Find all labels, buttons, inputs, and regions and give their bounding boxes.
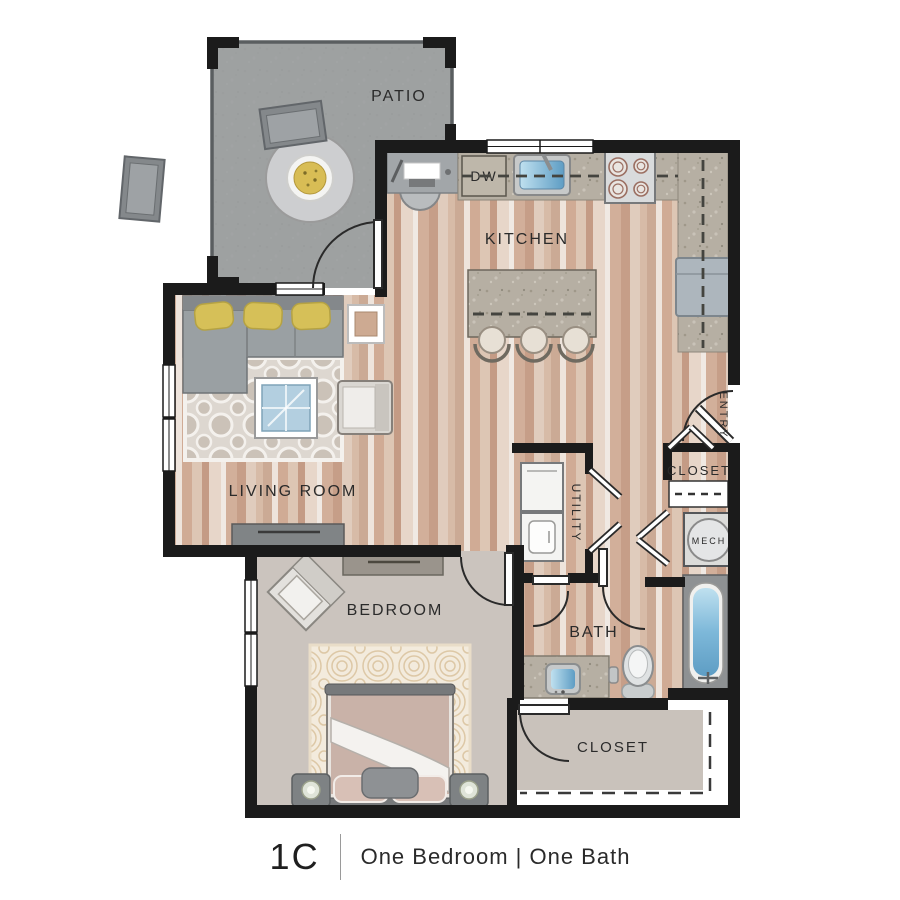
plan-description: One Bedroom | One Bath <box>361 844 631 870</box>
nightstand <box>292 774 330 807</box>
bathtub <box>683 575 728 693</box>
entry-label: ENTRY <box>717 391 729 438</box>
vanity-sink <box>517 656 618 698</box>
throw-pillow <box>194 301 331 331</box>
plan-caption: 1C One Bedroom | One Bath <box>0 834 900 880</box>
bed <box>325 684 455 809</box>
tv-console <box>232 524 344 546</box>
nightstand <box>450 774 488 807</box>
dryer <box>521 513 563 561</box>
floorplan-page: DW <box>0 0 900 900</box>
kitchen-sink <box>514 154 570 195</box>
dresser <box>343 555 443 575</box>
bath-label: BATH <box>569 624 618 641</box>
side-table <box>348 305 384 343</box>
closet-shelf <box>669 481 728 507</box>
bedroom-label: BEDROOM <box>347 602 444 619</box>
bed-throw-pillow <box>362 768 418 798</box>
caption-divider <box>340 834 341 880</box>
stove <box>605 152 655 203</box>
patio-chair <box>260 101 327 149</box>
floorplan-svg: DW <box>0 0 900 900</box>
toilet <box>622 646 654 699</box>
armchair <box>338 381 392 434</box>
mech-label: MECH <box>692 536 727 546</box>
walkin-closet-label: CLOSET <box>577 739 649 756</box>
patio-label: PATIO <box>371 88 427 105</box>
entry-closet-label: CLOSET <box>667 463 731 478</box>
plan-code: 1C <box>270 836 320 878</box>
utility-label: UTILITY <box>569 484 583 543</box>
desk <box>387 152 458 193</box>
kitchen-label: KITCHEN <box>485 231 569 248</box>
coffee-table <box>255 378 317 438</box>
living-room-label: LIVING ROOM <box>229 483 358 500</box>
washer <box>521 463 563 511</box>
patio-chair <box>119 156 164 221</box>
